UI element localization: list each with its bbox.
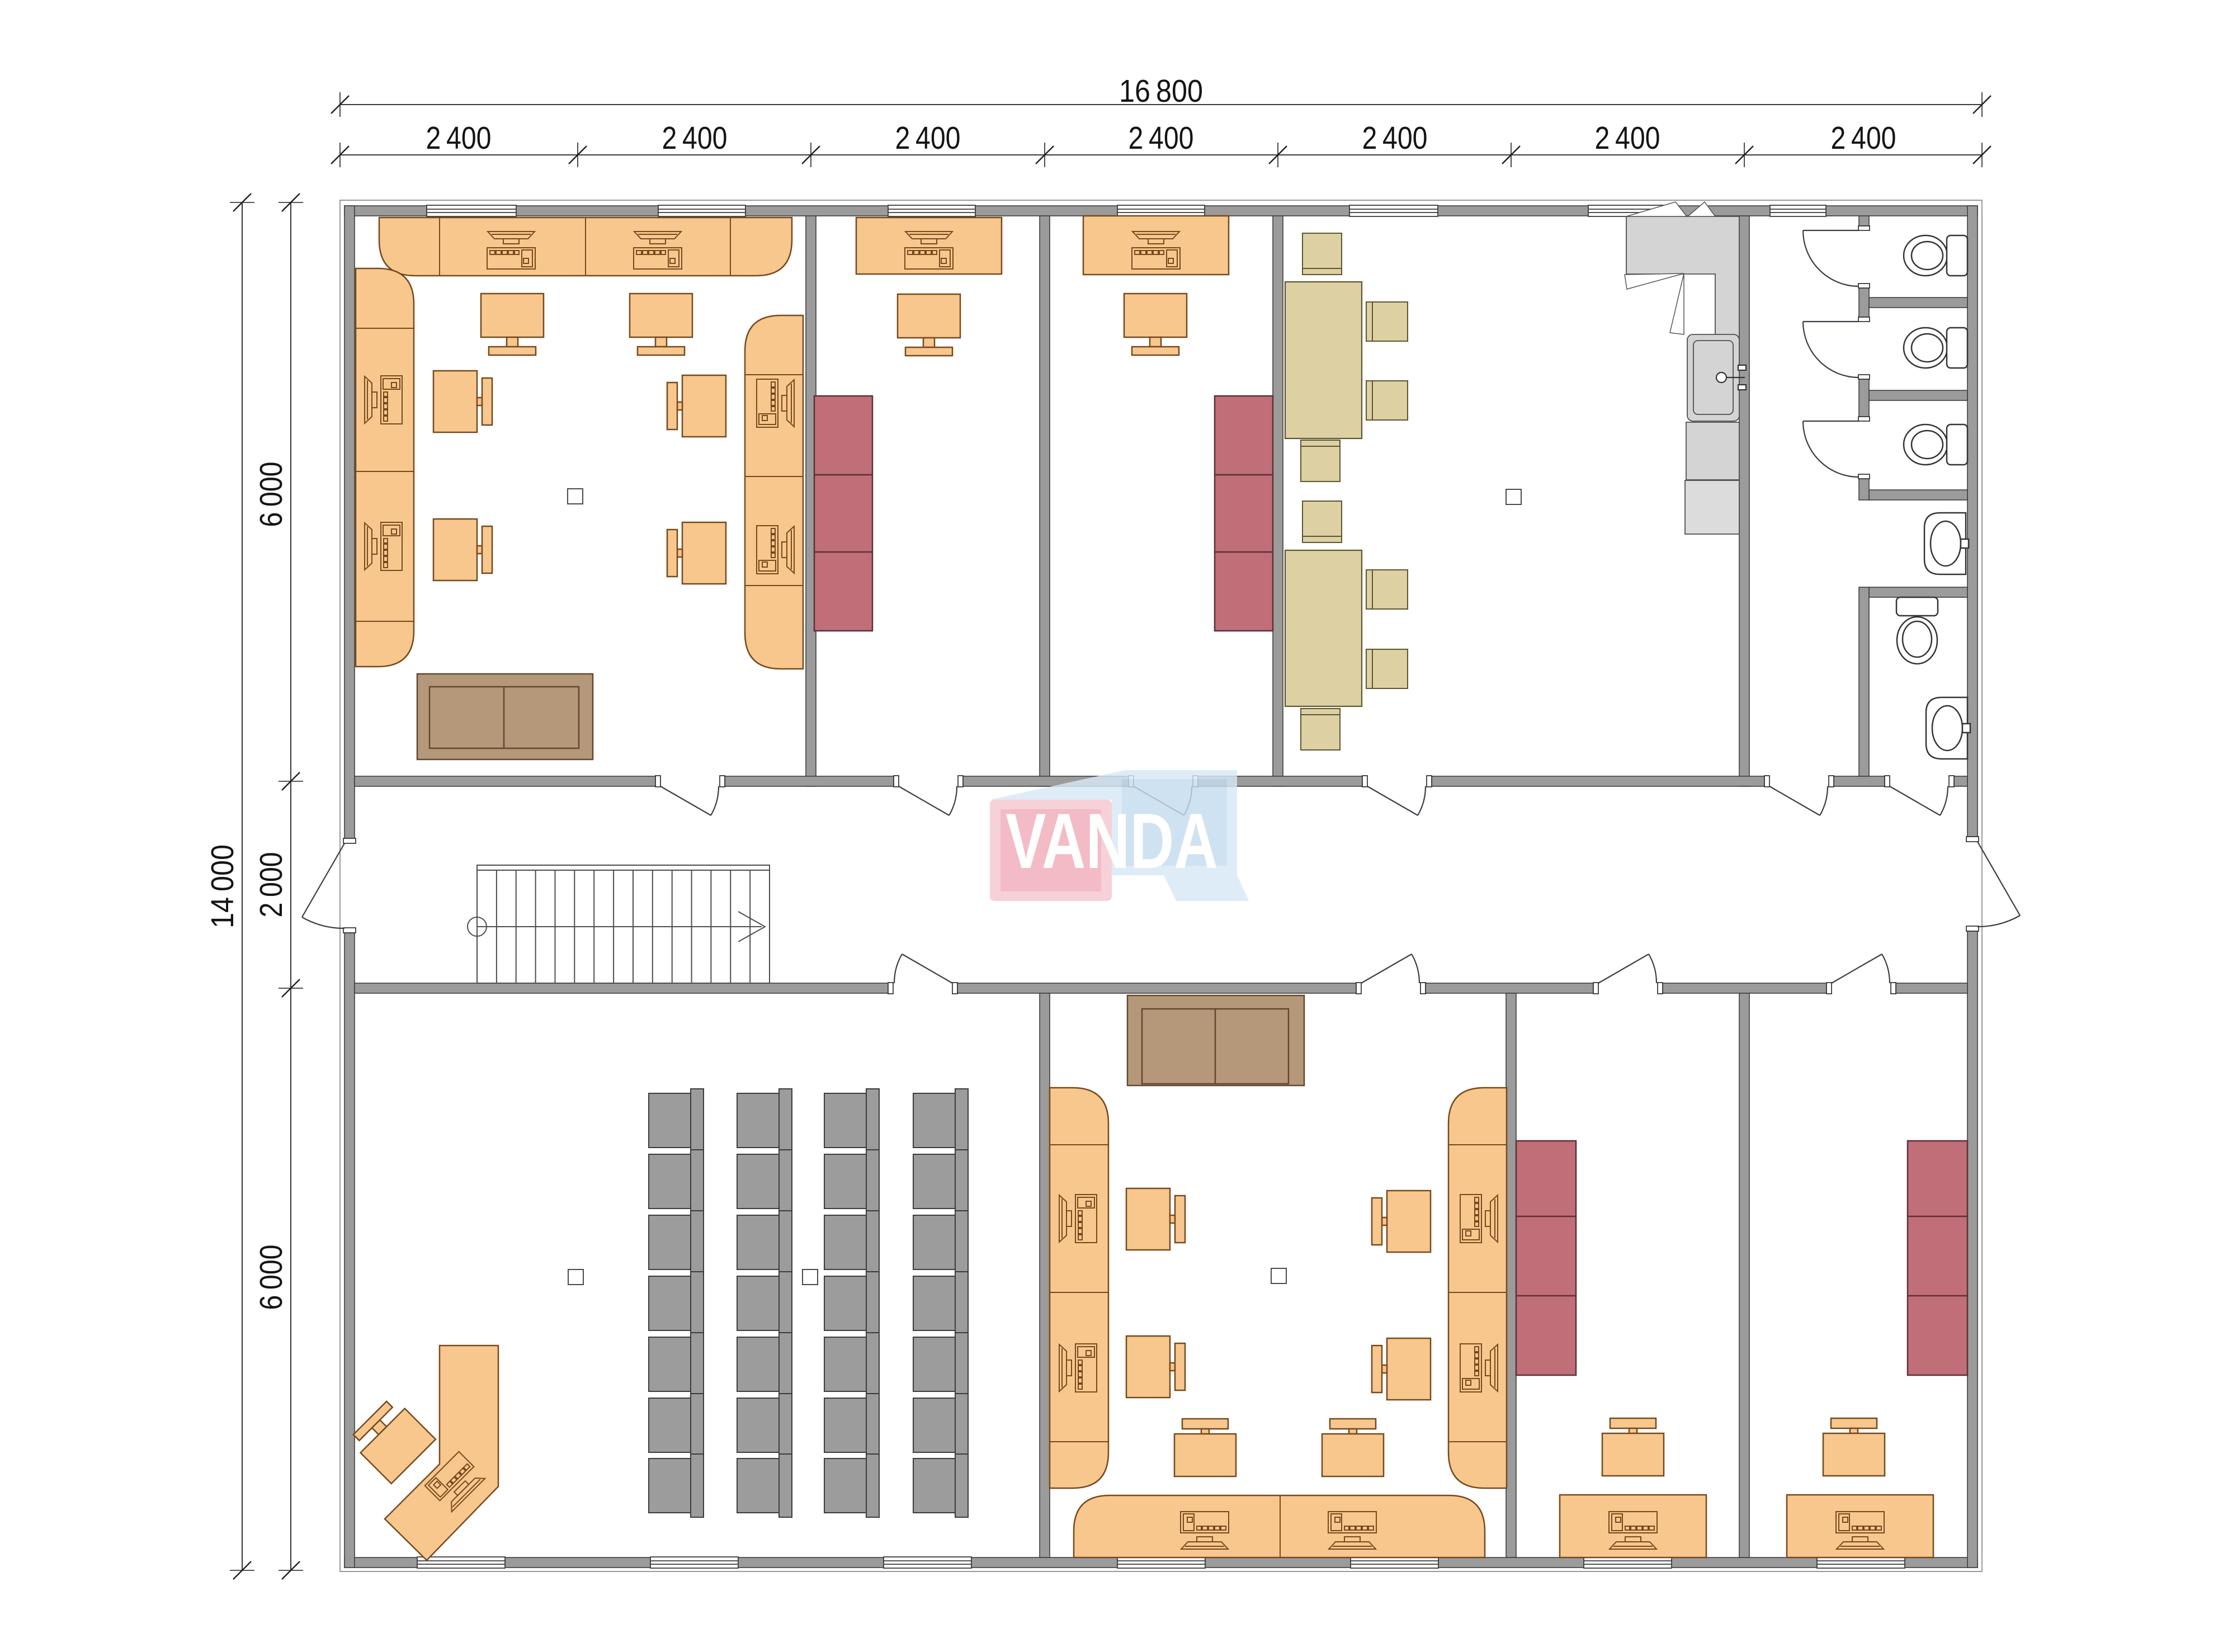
svg-text:2 400: 2 400	[1595, 120, 1660, 156]
svg-text:2 400: 2 400	[1362, 120, 1428, 156]
svg-text:2 400: 2 400	[895, 120, 961, 156]
svg-text:2 400: 2 400	[1129, 120, 1194, 156]
svg-text:6 000: 6 000	[253, 462, 289, 527]
svg-text:2 400: 2 400	[1831, 120, 1896, 156]
svg-text:2 000: 2 000	[253, 852, 289, 918]
svg-text:6 000: 6 000	[253, 1245, 289, 1310]
svg-text:2 400: 2 400	[426, 120, 492, 156]
svg-text:2 400: 2 400	[662, 120, 728, 156]
svg-text:16 800: 16 800	[1119, 73, 1203, 109]
svg-text:14 000: 14 000	[205, 844, 240, 928]
svg-text:VANDA: VANDA	[1006, 797, 1218, 885]
